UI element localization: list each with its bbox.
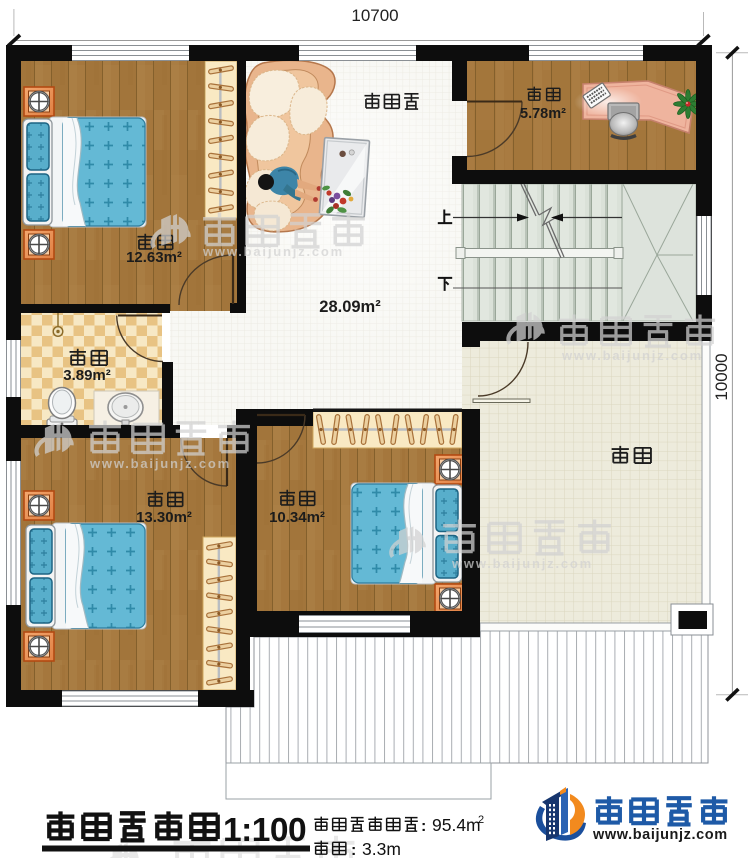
- svg-text:3.89m²: 3.89m²: [63, 367, 111, 384]
- svg-text:13.30m²: 13.30m²: [136, 509, 192, 526]
- svg-text:www.baijunjz.com: www.baijunjz.com: [451, 556, 593, 571]
- svg-text:5.78m²: 5.78m²: [520, 106, 566, 122]
- svg-text::: :: [351, 842, 356, 858]
- svg-text:www.baijunjz.com: www.baijunjz.com: [592, 827, 728, 843]
- svg-text:1:100: 1:100: [223, 812, 306, 849]
- svg-text:10000: 10000: [712, 353, 731, 400]
- svg-text:3.3m: 3.3m: [362, 839, 401, 858]
- svg-text:95.4m: 95.4m: [432, 815, 481, 835]
- svg-text:28.09m²: 28.09m²: [319, 298, 381, 316]
- svg-text:www.baijunjz.com: www.baijunjz.com: [561, 348, 703, 363]
- svg-text:www.baijunjz.com: www.baijunjz.com: [89, 456, 231, 471]
- svg-text:12.63m²: 12.63m²: [126, 249, 182, 266]
- svg-text:10700: 10700: [351, 6, 398, 25]
- svg-text:www.baijunjz.com: www.baijunjz.com: [202, 244, 344, 259]
- svg-text:10.34m²: 10.34m²: [269, 509, 325, 526]
- svg-text::: :: [421, 818, 426, 835]
- svg-text:2: 2: [478, 814, 484, 826]
